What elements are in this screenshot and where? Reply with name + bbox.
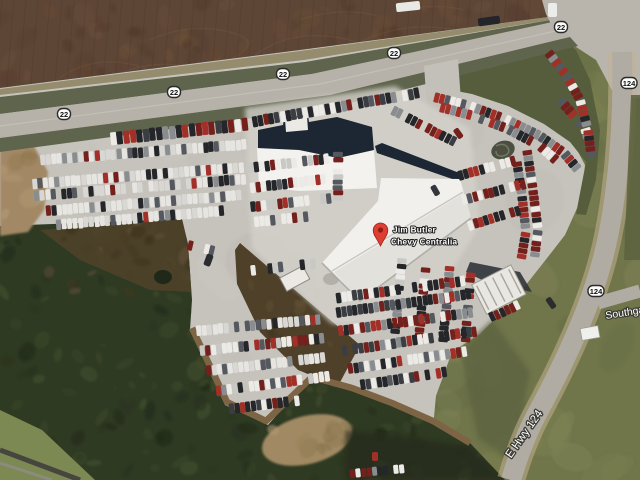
svg-text:22: 22 <box>390 49 398 58</box>
svg-text:22: 22 <box>170 88 178 97</box>
svg-text:22: 22 <box>557 23 565 32</box>
svg-text:124: 124 <box>623 79 636 88</box>
svg-text:Chevy Centralia: Chevy Centralia <box>391 238 458 247</box>
svg-text:22: 22 <box>60 110 68 119</box>
svg-text:22: 22 <box>279 70 287 79</box>
svg-text:124: 124 <box>590 287 603 296</box>
svg-text:Jim Butler: Jim Butler <box>393 226 437 235</box>
